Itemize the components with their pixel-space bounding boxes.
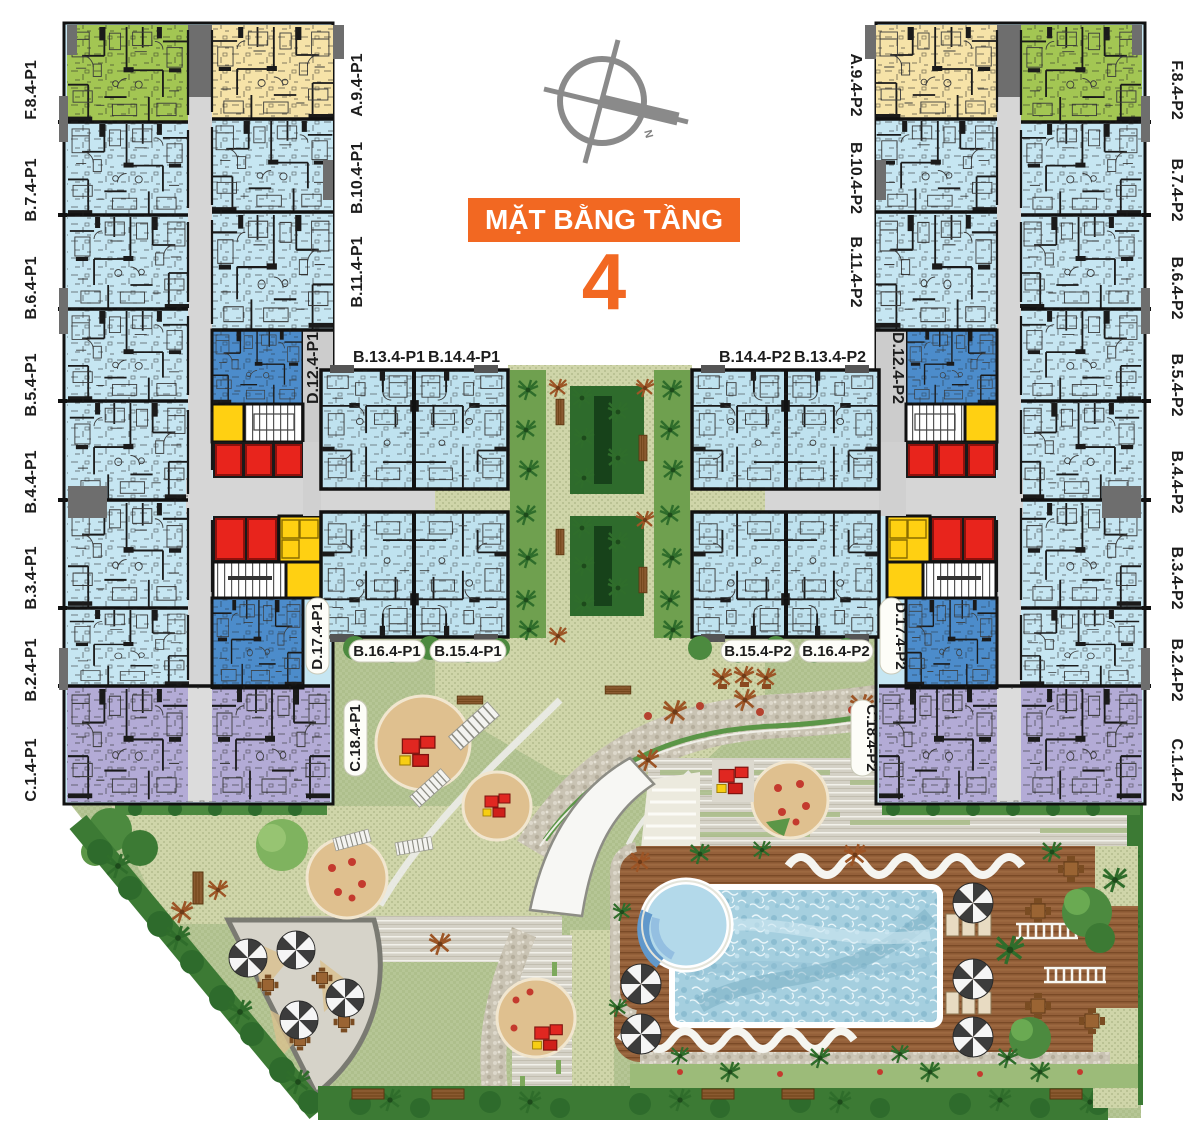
svg-text:MẶT BẰNG TẦNG: MẶT BẰNG TẦNG [485,204,723,235]
svg-text:D.17.4-P2: D.17.4-P2 [892,602,909,670]
svg-text:4: 4 [582,237,627,326]
svg-text:C.1.4-P2: C.1.4-P2 [1168,738,1185,801]
svg-text:B.13.4-P2: B.13.4-P2 [794,349,866,366]
svg-text:B.5.4-P1: B.5.4-P1 [23,353,40,416]
svg-text:C.1.4-P1: C.1.4-P1 [23,738,40,801]
svg-text:B.16.4-P1: B.16.4-P1 [353,643,421,660]
svg-text:B.2.4-P2: B.2.4-P2 [1168,638,1185,701]
svg-text:B.4.4-P1: B.4.4-P1 [23,450,40,513]
svg-text:D.12.4-P1: D.12.4-P1 [305,332,322,404]
svg-text:B.11.4-P1: B.11.4-P1 [349,236,366,307]
svg-text:B.14.4-P1: B.14.4-P1 [428,349,500,366]
svg-text:D.17.4-P1: D.17.4-P1 [309,602,326,670]
svg-text:B.11.4-P2: B.11.4-P2 [847,236,864,307]
svg-text:F.8.4-P2: F.8.4-P2 [1168,60,1185,120]
svg-text:B.14.4-P2: B.14.4-P2 [719,349,791,366]
svg-text:C.18.4-P2: C.18.4-P2 [863,704,880,772]
svg-text:B.15.4-P2: B.15.4-P2 [724,643,792,660]
svg-text:B.6.4-P2: B.6.4-P2 [1168,256,1185,319]
svg-text:B.2.4-P1: B.2.4-P1 [23,638,40,701]
svg-text:B.10.4-P1: B.10.4-P1 [349,142,366,214]
svg-text:B.3.4-P2: B.3.4-P2 [1168,546,1185,609]
svg-text:B.7.4-P1: B.7.4-P1 [23,158,40,221]
svg-text:B.3.4-P1: B.3.4-P1 [23,546,40,609]
svg-text:B.7.4-P2: B.7.4-P2 [1168,158,1185,221]
svg-text:A.9.4-P1: A.9.4-P1 [349,53,366,116]
svg-text:A.9.4-P2: A.9.4-P2 [847,53,864,116]
svg-text:B.15.4-P1: B.15.4-P1 [434,643,502,660]
svg-text:B.16.4-P2: B.16.4-P2 [802,643,870,660]
svg-text:B.6.4-P1: B.6.4-P1 [23,256,40,319]
svg-text:B.4.4-P2: B.4.4-P2 [1168,450,1185,513]
svg-text:B.10.4-P2: B.10.4-P2 [847,142,864,214]
svg-text:B.13.4-P1: B.13.4-P1 [353,349,425,366]
svg-text:C.18.4-P1: C.18.4-P1 [347,704,364,772]
svg-text:D.12.4-P2: D.12.4-P2 [889,332,906,404]
svg-text:B.5.4-P2: B.5.4-P2 [1168,353,1185,416]
svg-text:F.8.4-P1: F.8.4-P1 [23,60,40,120]
